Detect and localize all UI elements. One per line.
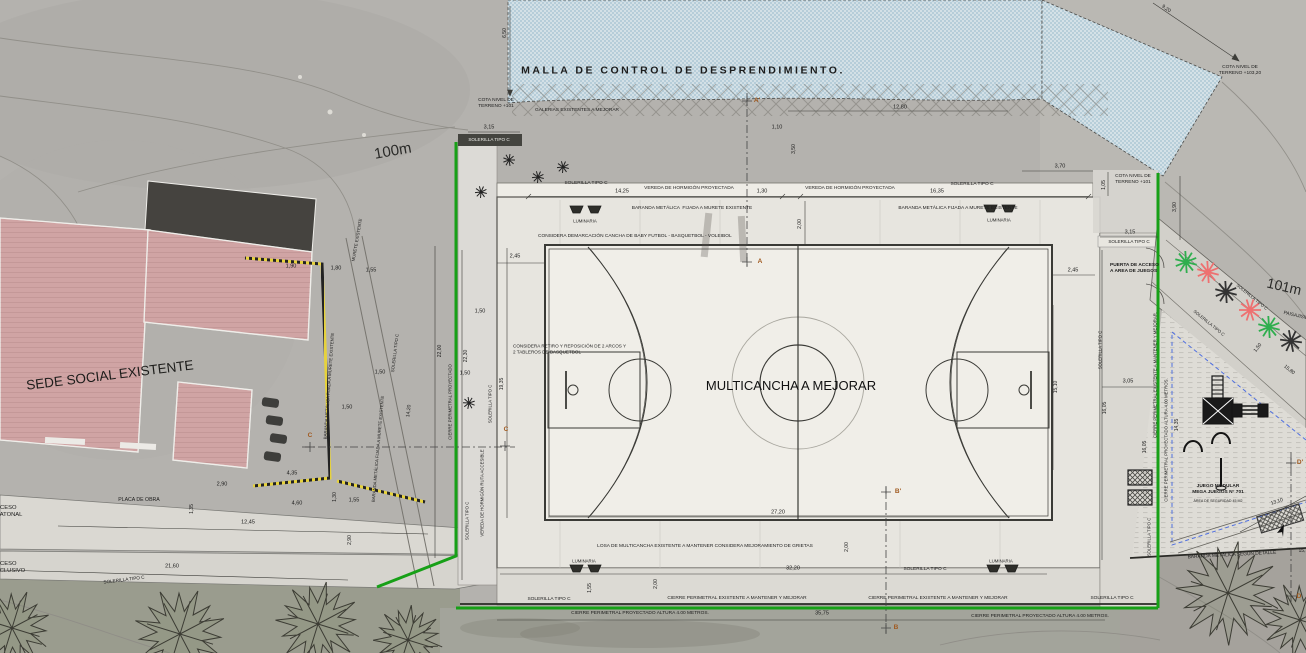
multicourt — [545, 213, 1052, 520]
site-plan: MALLA DE CONTROL DE DESPRENDIMIENTO.COTA… — [0, 0, 1306, 653]
plan-drawing — [0, 0, 1306, 653]
